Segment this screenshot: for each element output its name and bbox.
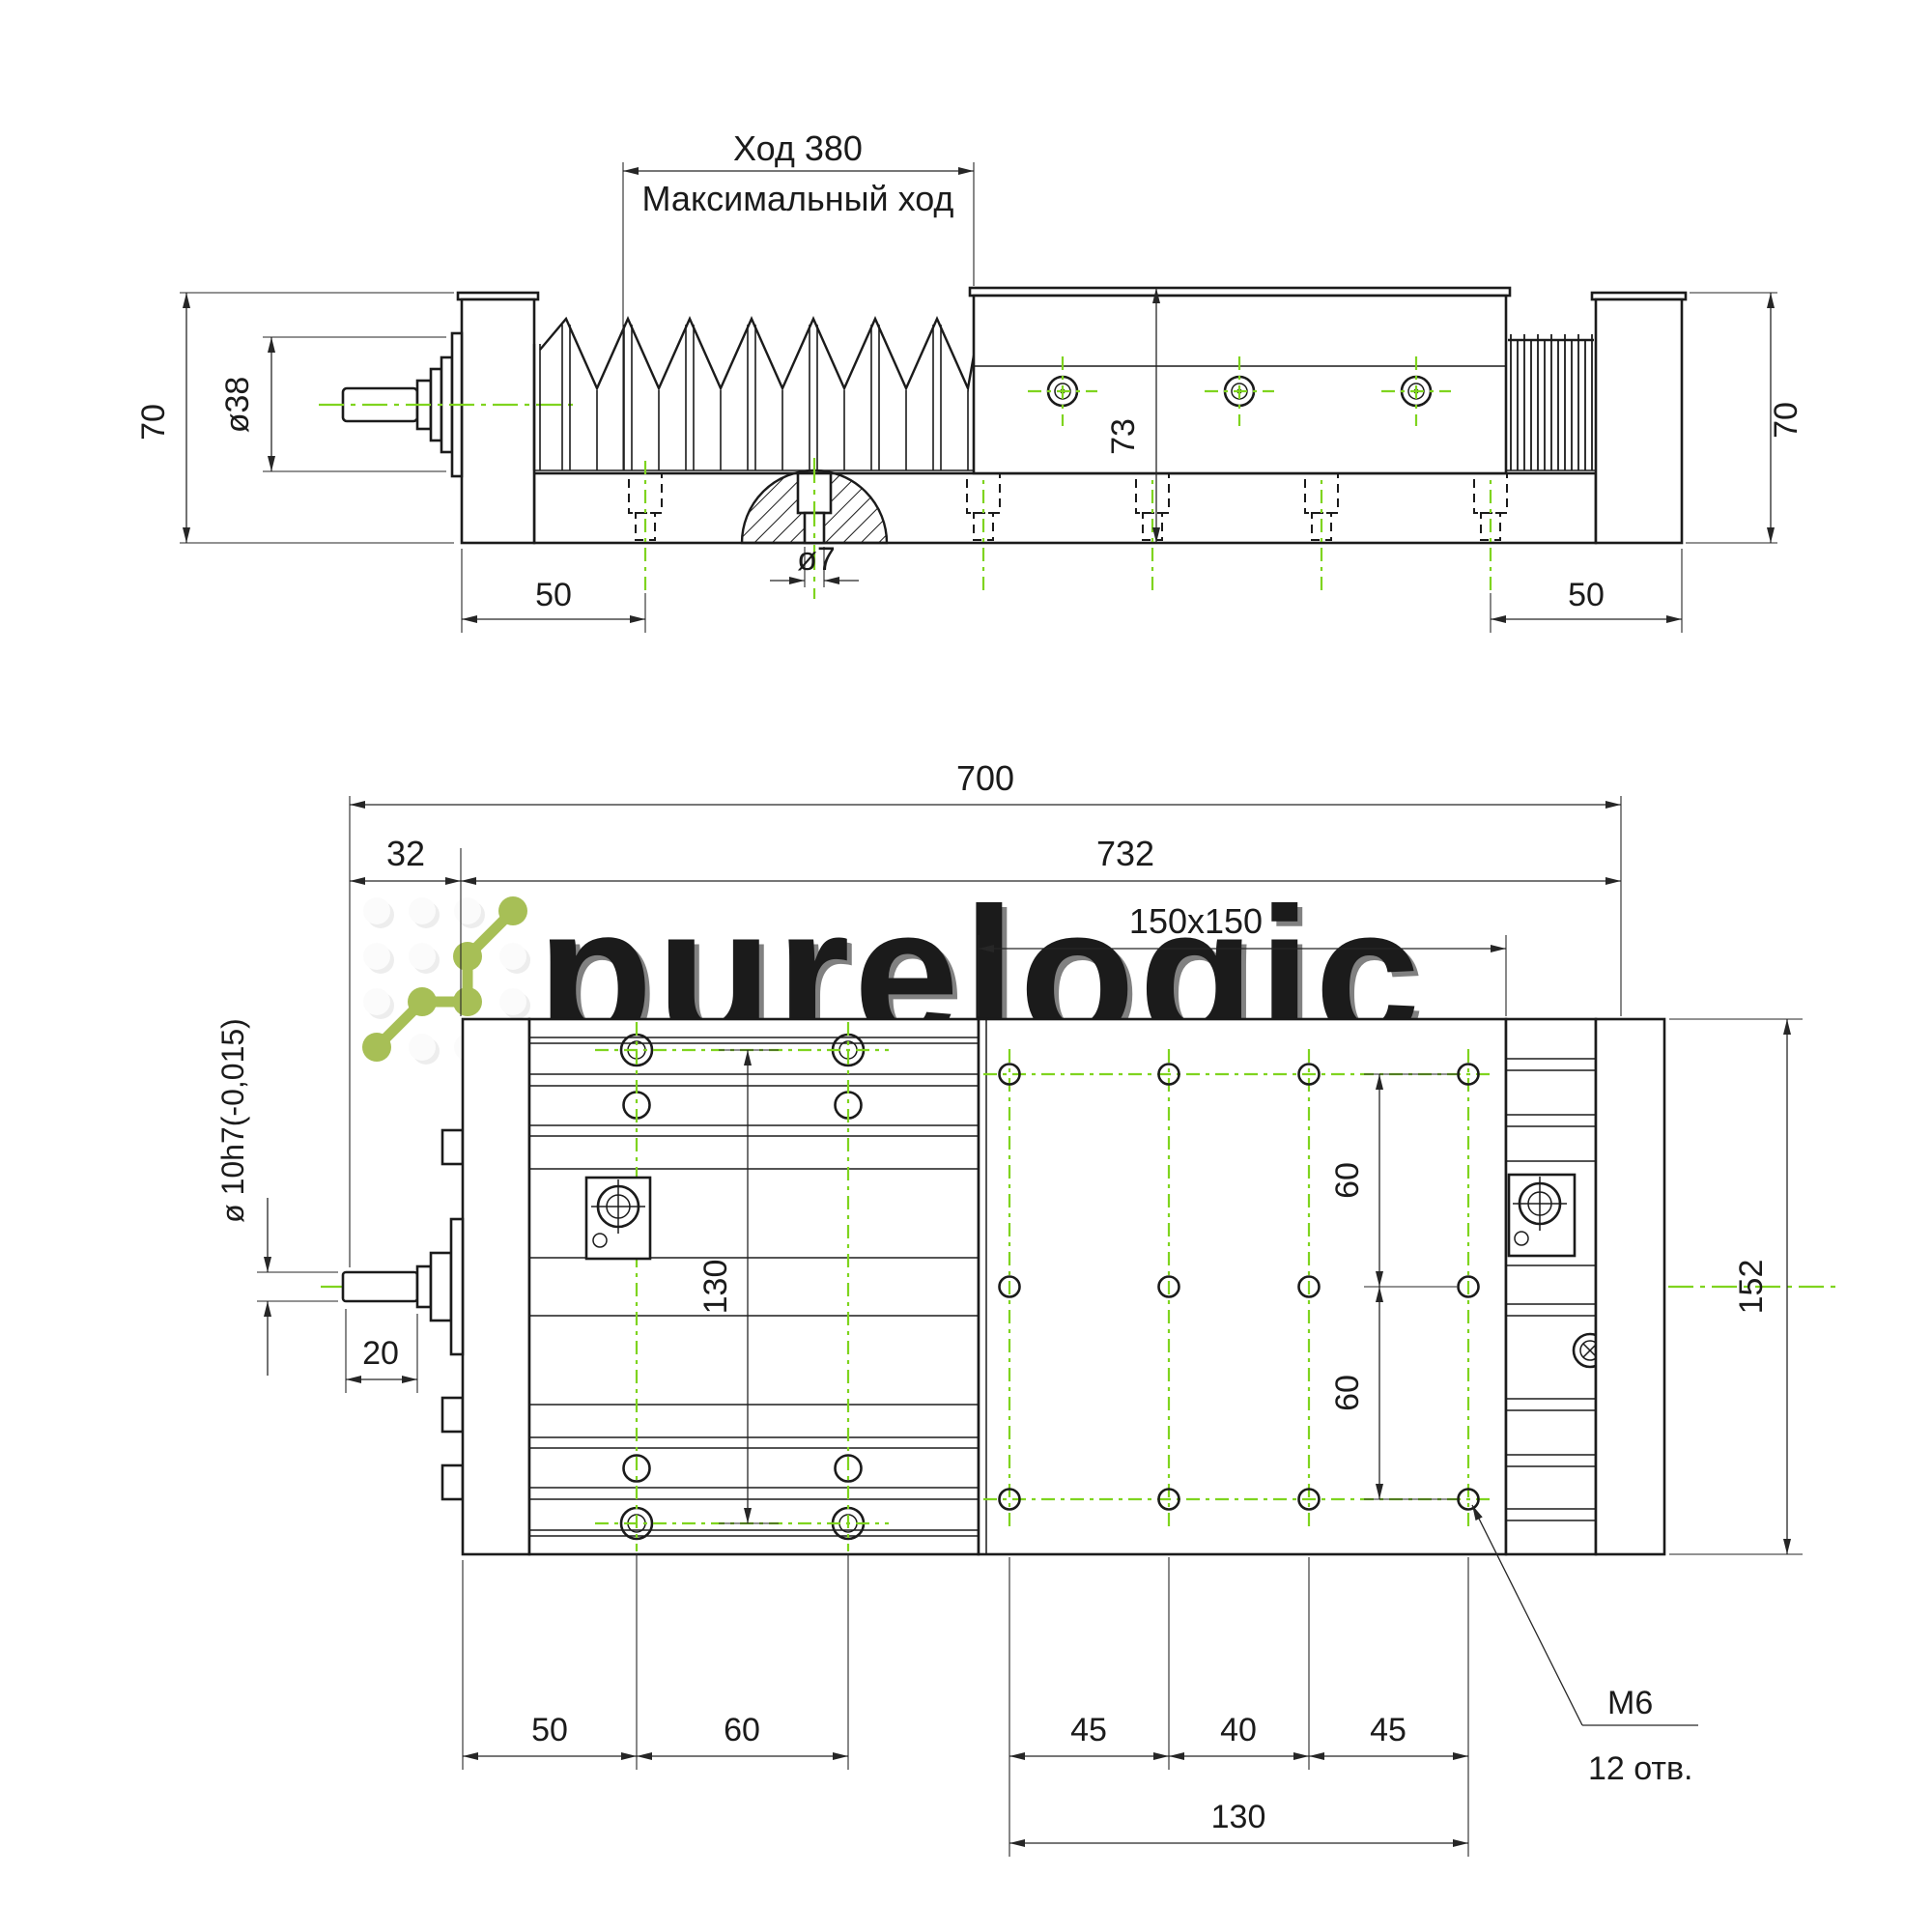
dim-hole-spacing-label: 60: [724, 1712, 760, 1748]
dim-plate-size-label: 150x150: [1129, 901, 1263, 941]
end-cap-plan: [1596, 1019, 1664, 1554]
right-end-block: [1592, 293, 1686, 543]
motor-shaft-plan: [343, 1219, 463, 1354]
dim-height-right-label: 70: [1768, 402, 1804, 439]
top-view: Ход 380 Максимальный ход 70 ø38 73 7: [135, 128, 1804, 633]
base-hole: [629, 461, 662, 591]
bellows-compressed: [1508, 334, 1594, 470]
base-hole: [1136, 461, 1169, 591]
base-hole: [1305, 461, 1338, 591]
base-hole: [967, 461, 1000, 591]
limit-switch-right: [1509, 1175, 1575, 1256]
left-end-block: [458, 293, 538, 543]
dim-shaft-dia-plan-label: ø 10h7(-0,015): [215, 1018, 250, 1223]
dim-shaft-length-label: 20: [362, 1335, 399, 1372]
drawing-canvas: { "colors": { "centerline_green": "#7fd4…: [0, 0, 1932, 1932]
hatched-boss-section: [742, 458, 887, 599]
dim-base-offset-right: 50: [1491, 549, 1682, 633]
dim-stroke: Ход 380 Максимальный ход: [623, 128, 974, 470]
base-plate: [534, 470, 1596, 543]
dim-row-spacing-top-label: 60: [1329, 1162, 1366, 1199]
dim-hole-offset-label: 50: [531, 1712, 568, 1748]
dim-base-hole-rows-label: 130: [697, 1260, 734, 1315]
dim-height-right: 70: [1686, 293, 1804, 543]
dim-motor-plate: 32: [350, 834, 461, 1016]
dim-col-span-label: 130: [1211, 1799, 1266, 1835]
thread-label: M6: [1607, 1685, 1653, 1721]
dim-col-spacing-1-label: 45: [1070, 1712, 1107, 1748]
dim-hole-dia-label: ø7: [797, 541, 836, 578]
dim-row-spacing-bottom-label: 60: [1329, 1375, 1366, 1411]
technical-drawing: purelogic purelogic research & developme…: [0, 0, 1932, 1932]
dim-stroke-sublabel: Максимальный ход: [642, 179, 954, 218]
dim-shaft-length: 20: [346, 1309, 417, 1393]
carriage-block: [970, 288, 1510, 473]
dim-motor-plate-label: 32: [386, 834, 425, 873]
dim-shaft-dia-label: ø38: [219, 377, 256, 434]
limit-switch-left: [586, 1178, 650, 1259]
base-hole: [1474, 461, 1507, 591]
dim-body-length-label: 732: [1096, 834, 1154, 873]
dim-base-offset-left-label: 50: [535, 577, 572, 613]
dim-base-offset-right-label: 50: [1568, 577, 1605, 613]
holes-count-label: 12 отв.: [1588, 1750, 1693, 1787]
base-body-plan: [529, 1019, 979, 1554]
dim-bottom-chain: 50 60 45 40 45 130: [463, 1553, 1468, 1857]
dim-height-left-label: 70: [135, 404, 172, 440]
bellows-extended: [534, 319, 974, 470]
dim-base-offset-left: 50: [462, 549, 645, 633]
dim-col-spacing-2-label: 40: [1220, 1712, 1257, 1748]
dim-shaft-dia-plan: ø 10h7(-0,015): [215, 1018, 338, 1376]
dim-col-spacing-3-label: 45: [1370, 1712, 1406, 1748]
dim-stroke-label: Ход 380: [733, 128, 863, 168]
dim-carriage-height-label: 73: [1105, 418, 1142, 455]
dim-total-length-label: 700: [956, 758, 1014, 798]
bellows-plan: [1506, 1019, 1606, 1554]
dim-overall-width-label: 152: [1733, 1260, 1770, 1315]
